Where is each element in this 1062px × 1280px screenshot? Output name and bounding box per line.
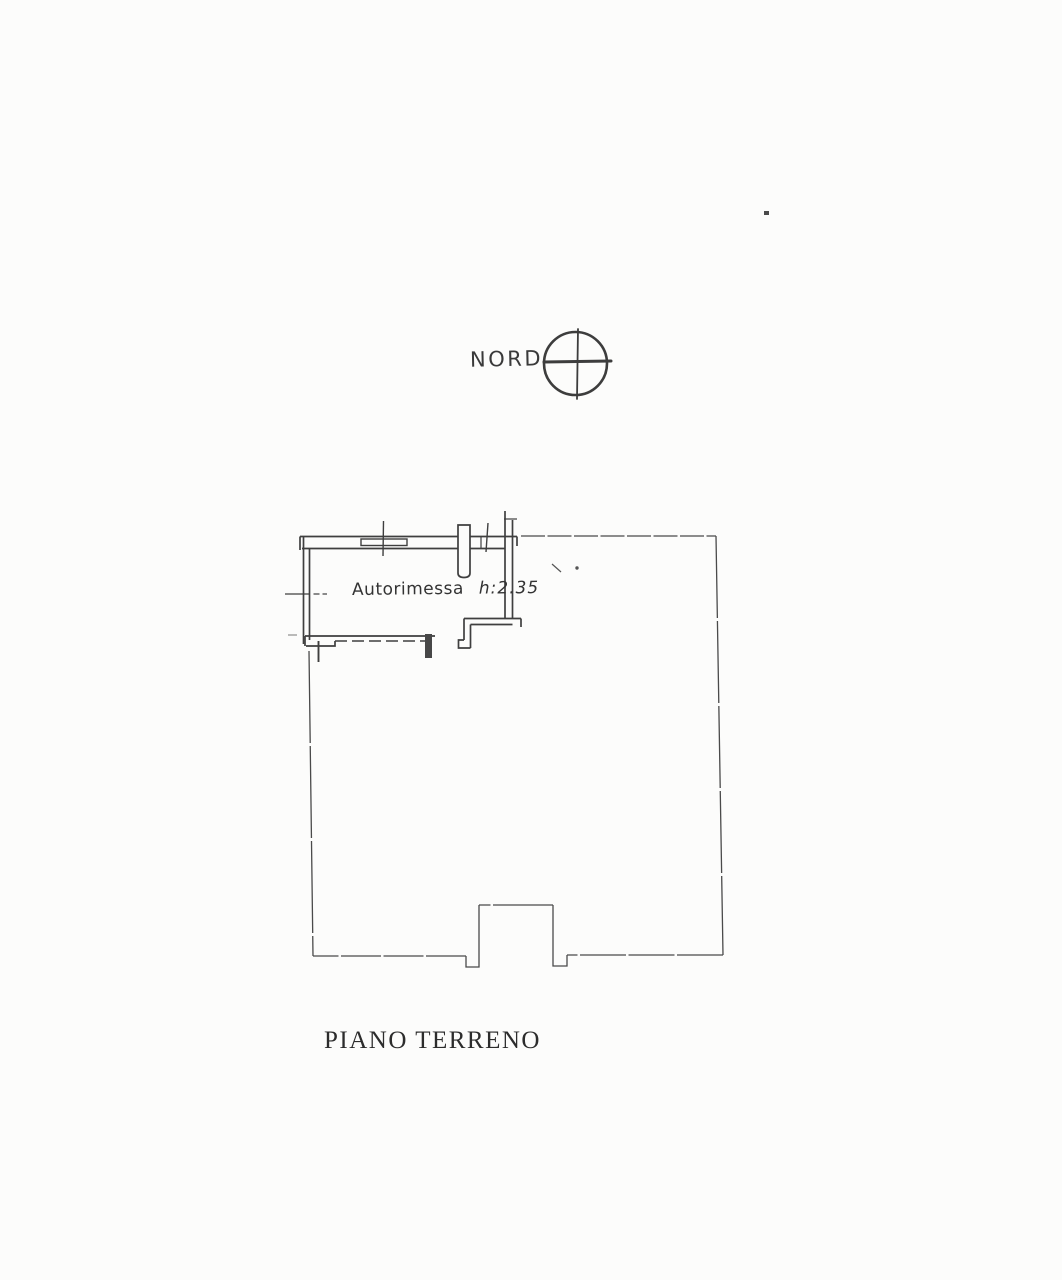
room-height: h:2.35: [479, 578, 540, 599]
room-name: Autorimessa: [352, 579, 464, 600]
wall-foot: [459, 640, 471, 648]
room-label: Autorimessa h:2.35: [352, 578, 539, 600]
door-jamb-right: [425, 634, 432, 658]
garage-pillar: [458, 525, 470, 578]
parcel-boundary: [309, 536, 723, 967]
entrance-notch-right: [553, 905, 567, 966]
scanned-floor-plan-page: NORD Autorimessa h:2.35 PIANO TERRENO: [0, 0, 1062, 1280]
floor-plan-drawing: [0, 0, 1062, 1280]
garage-window: [361, 539, 407, 546]
floor-title: PIANO TERRENO: [324, 1027, 541, 1055]
north-compass-icon: [544, 329, 611, 399]
scan-artifacts: [288, 211, 769, 635]
entrance-notch-left: [466, 905, 479, 967]
north-label: NORD: [470, 346, 543, 372]
